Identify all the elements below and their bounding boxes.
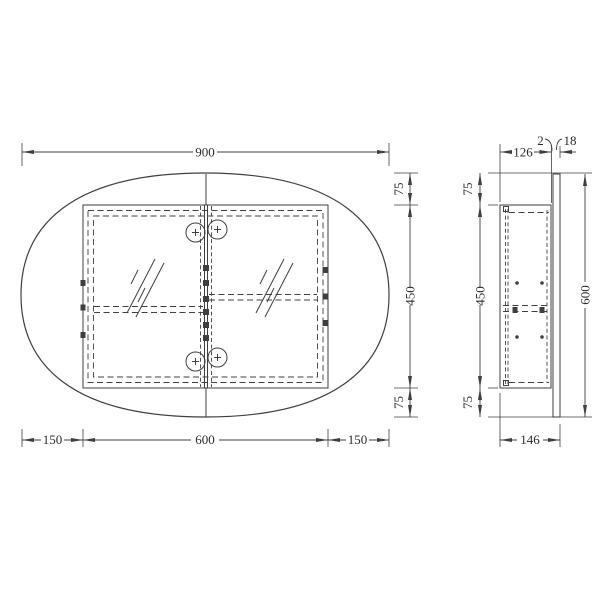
screw-dot — [540, 281, 544, 285]
dim-side-gap: 2 — [537, 133, 544, 148]
dim-front-right-top: 75 — [391, 183, 406, 196]
screw-dot — [515, 281, 519, 285]
screw-dot — [515, 335, 519, 339]
center-clip-mark — [203, 265, 209, 271]
hinge-mark — [81, 332, 86, 338]
center-clip-mark — [203, 335, 209, 341]
dim-front-bottom-right: 150 — [348, 432, 368, 447]
knob-bottom-right — [208, 348, 227, 367]
leader-line — [545, 139, 552, 151]
hinge-mark — [323, 320, 328, 326]
front-view-dimensions: 900 75 450 75 150 600 150 — [22, 143, 418, 447]
shelf-bracket-mark — [323, 294, 328, 300]
side-view-dimensions: 126 2 18 75 450 75 600 146 — [460, 133, 593, 447]
dim-side-depth: 126 — [513, 145, 533, 160]
dim-front-bottom-left: 150 — [43, 432, 63, 447]
mirror-hatch-left — [127, 259, 164, 317]
hinge-mark — [81, 280, 86, 286]
dim-front-bottom-center: 600 — [195, 432, 215, 447]
dim-side-mirror-thickness: 18 — [564, 133, 577, 148]
dim-front-right-bottom: 75 — [391, 396, 406, 409]
mirror-hatch-right — [256, 259, 293, 317]
knob-bottom-left — [186, 352, 205, 371]
dim-side-left-top: 75 — [460, 183, 475, 196]
leader-line — [557, 139, 563, 150]
side-mirror-panel — [553, 174, 560, 417]
technical-drawing: 900 75 450 75 150 600 150 — [0, 0, 600, 600]
shelf-bracket-mark — [540, 307, 545, 313]
dim-front-right-middle: 450 — [403, 286, 418, 306]
front-view — [21, 173, 389, 417]
knob-top-right — [208, 220, 227, 239]
center-clip-mark — [203, 296, 209, 302]
center-clip-mark — [203, 280, 209, 286]
dim-front-width: 900 — [195, 145, 215, 160]
knob-top-left — [186, 223, 205, 242]
shelf-bracket-mark — [513, 307, 518, 313]
dim-side-left-middle: 450 — [473, 286, 488, 306]
drawing-svg: 900 75 450 75 150 600 150 — [0, 0, 600, 600]
side-view — [500, 174, 560, 417]
dim-side-left-bottom: 75 — [460, 396, 475, 409]
dim-side-bottom-depth: 146 — [520, 432, 540, 447]
hinge-mark — [323, 267, 328, 273]
center-clip-mark — [203, 322, 209, 328]
center-clip-mark — [203, 309, 209, 315]
dim-side-height: 600 — [578, 285, 593, 305]
shelf-bracket-mark — [81, 305, 86, 311]
screw-dot — [540, 335, 544, 339]
